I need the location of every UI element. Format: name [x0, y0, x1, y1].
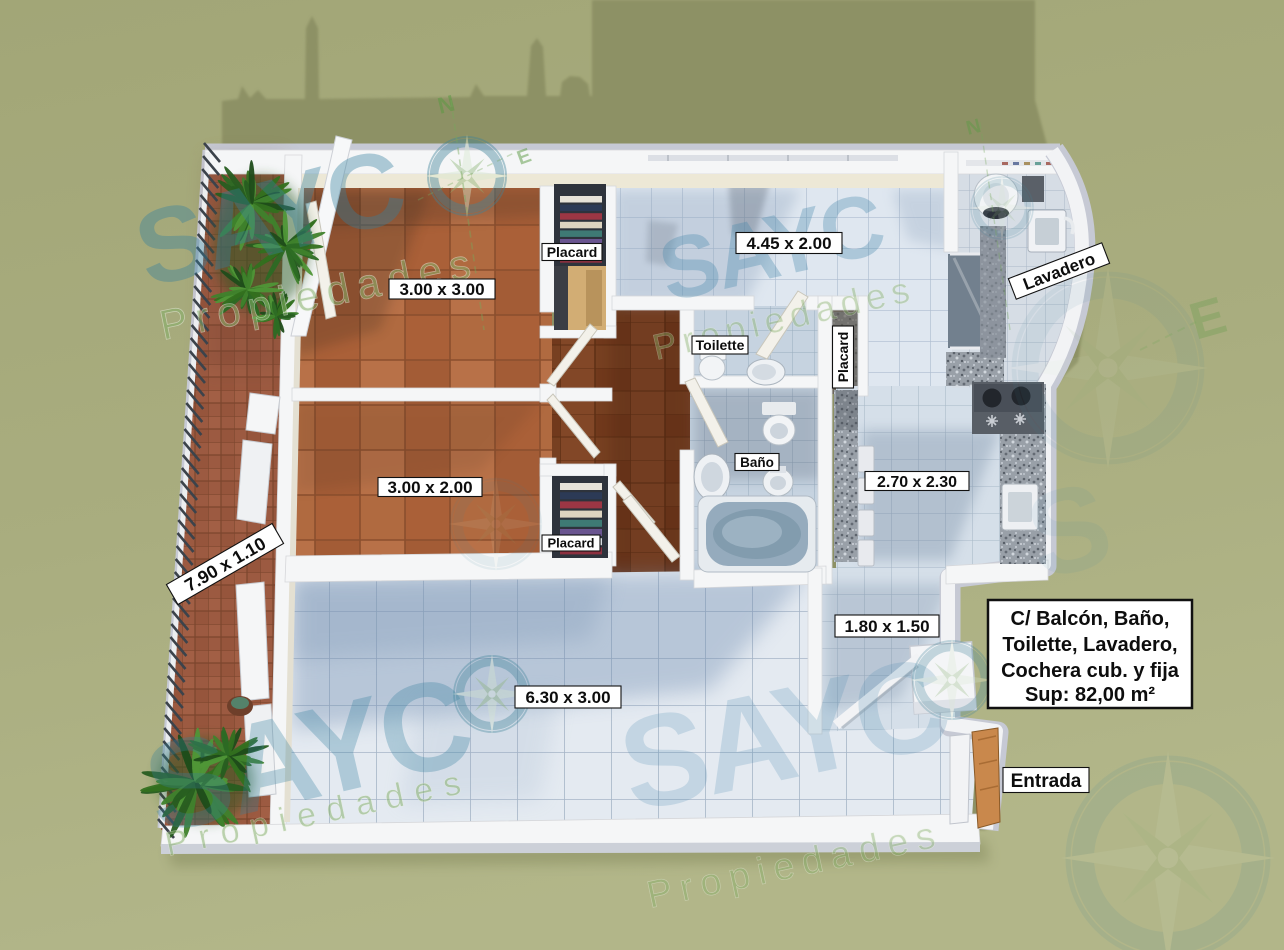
- svg-text:4.45 x 2.00: 4.45 x 2.00: [746, 234, 831, 253]
- svg-text:6.30 x 3.00: 6.30 x 3.00: [525, 688, 610, 707]
- svg-text:1.80 x 1.50: 1.80 x 1.50: [844, 617, 929, 636]
- svg-text:3.00 x 2.00: 3.00 x 2.00: [387, 478, 472, 497]
- svg-text:Toilette, Lavadero,: Toilette, Lavadero,: [1002, 634, 1177, 656]
- svg-text:Toilette: Toilette: [696, 337, 745, 353]
- svg-text:Placard: Placard: [547, 244, 598, 260]
- svg-text:2.70 x 2.30: 2.70 x 2.30: [877, 474, 957, 491]
- svg-text:Placard: Placard: [548, 536, 595, 551]
- svg-text:C/ Balcón, Baño,: C/ Balcón, Baño,: [1011, 608, 1170, 630]
- svg-text:Cochera cub. y fija: Cochera cub. y fija: [1001, 660, 1180, 682]
- svg-text:Baño: Baño: [740, 455, 774, 470]
- svg-text:Entrada: Entrada: [1011, 771, 1082, 792]
- svg-text:3.00 x 3.00: 3.00 x 3.00: [399, 280, 484, 299]
- svg-text:Sup: 82,00 m²: Sup: 82,00 m²: [1025, 684, 1155, 706]
- svg-text:Placard: Placard: [835, 332, 851, 383]
